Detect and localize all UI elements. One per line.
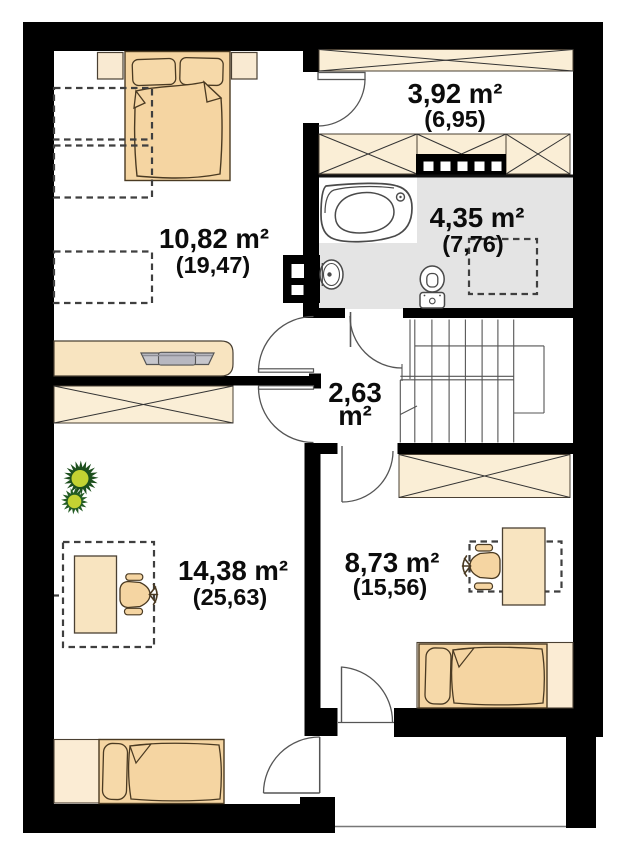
svg-text:14,38 m²: 14,38 m² <box>178 555 288 586</box>
svg-text:3,92 m²: 3,92 m² <box>408 78 503 109</box>
svg-text:(6,95): (6,95) <box>424 106 485 132</box>
svg-text:(25,63): (25,63) <box>193 584 267 610</box>
svg-text:m²: m² <box>338 400 372 431</box>
svg-text:10,82 m²: 10,82 m² <box>159 223 269 254</box>
svg-text:4,35 m²: 4,35 m² <box>430 202 525 233</box>
svg-text:(15,56): (15,56) <box>353 574 427 600</box>
svg-text:(19,47): (19,47) <box>176 252 250 278</box>
svg-text:(7,76): (7,76) <box>442 231 503 257</box>
